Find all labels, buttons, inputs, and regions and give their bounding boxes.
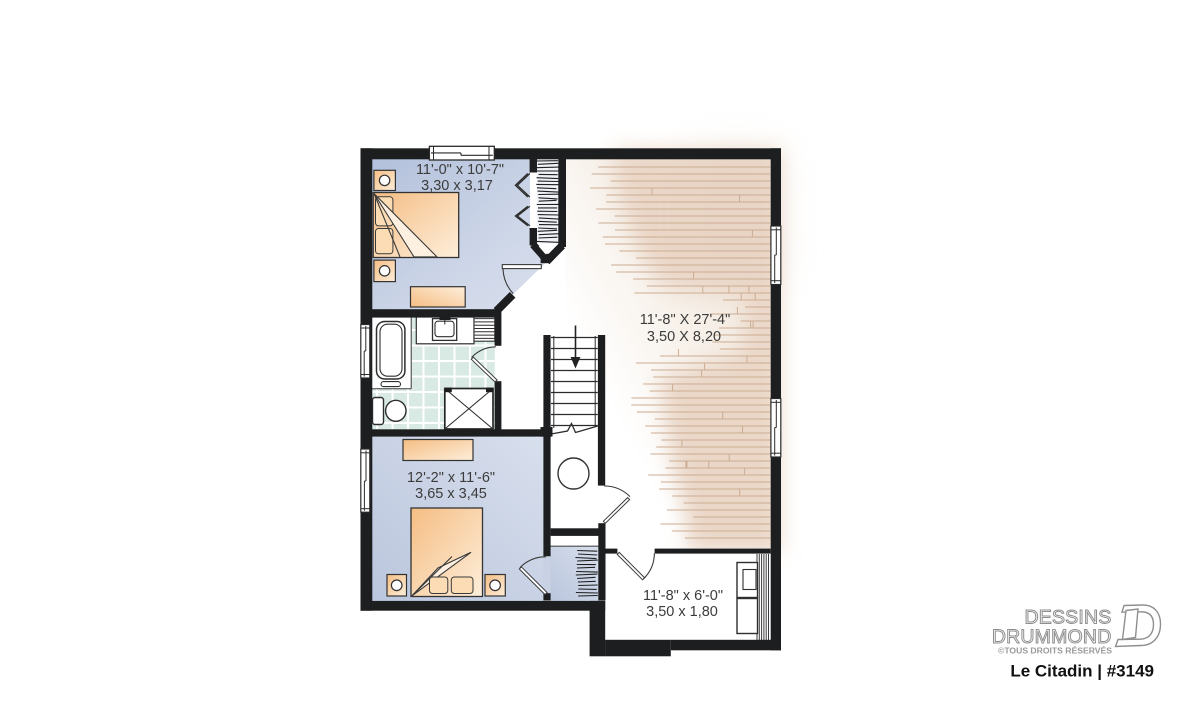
svg-text:©TOUS DROITS RÉSERVÉS: ©TOUS DROITS RÉSERVÉS [998, 646, 1112, 656]
svg-text:11'-8" x 6'-0": 11'-8" x 6'-0" [643, 588, 723, 604]
svg-text:3,50 x 1,80: 3,50 x 1,80 [646, 604, 718, 620]
svg-text:11'-0" x 10'-7": 11'-0" x 10'-7" [416, 162, 504, 178]
svg-text:11'-8" X 27'-4": 11'-8" X 27'-4" [640, 312, 731, 328]
svg-text:Le Citadin | #3149: Le Citadin | #3149 [1010, 662, 1154, 681]
svg-text:3,50 X 8,20: 3,50 X 8,20 [647, 329, 721, 345]
svg-text:12'-2" x 11'-6": 12'-2" x 11'-6" [407, 470, 495, 486]
svg-text:DRUMMOND: DRUMMOND [992, 626, 1112, 648]
svg-text:3,30 x 3,17: 3,30 x 3,17 [421, 178, 493, 194]
svg-text:3,65 x 3,45: 3,65 x 3,45 [415, 486, 487, 502]
